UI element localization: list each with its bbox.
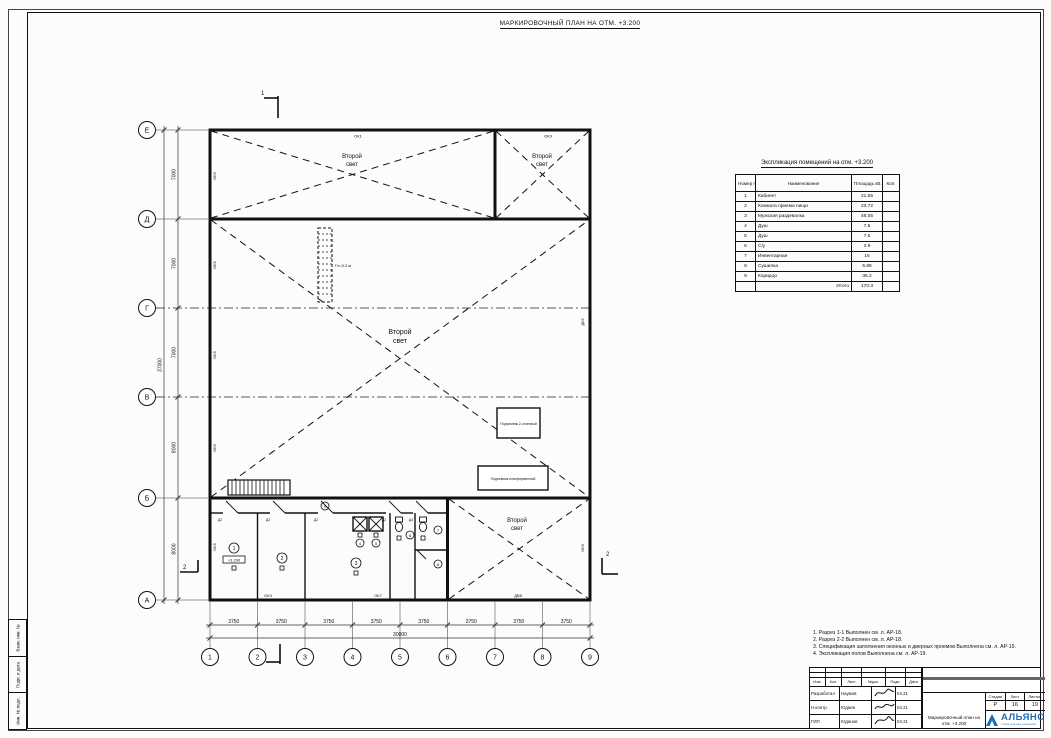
room-num: 2 <box>736 202 756 212</box>
axis-label: Е <box>145 128 150 135</box>
second-light-text: свет <box>536 162 548 168</box>
dim-label: 3750 <box>418 619 429 625</box>
room-area: 7.5 <box>852 232 883 242</box>
axis-label: 7 <box>493 655 497 662</box>
stamp-doc-code-box <box>923 668 1045 693</box>
axis-label: В <box>145 395 150 402</box>
notes-block: 1. Разрез 1-1 Выполнен см. л. АР-18. 2. … <box>813 630 1051 658</box>
table-row: 3Мужская раздевалка48.05 <box>736 212 900 222</box>
room-name: Коридор <box>756 272 852 282</box>
axis-label: 1 <box>208 655 212 662</box>
room-qty <box>883 202 900 212</box>
second-light-text: Второй <box>342 153 362 160</box>
empty-cell <box>883 282 900 292</box>
sig-name: Юданов <box>840 715 872 728</box>
company-logo: АЛЬЯНС строительная компания <box>986 711 1045 728</box>
empty-cell <box>736 282 756 292</box>
window-tag: ОК7 <box>374 593 382 598</box>
company-name: АЛЬЯНС <box>1001 713 1045 722</box>
stage-label: Стадия <box>986 693 1006 700</box>
room-num: 4 <box>736 222 756 232</box>
dim-label: 3750 <box>276 619 287 625</box>
wall-opening-tags: ОК1 ОК3 ОК5 ОК5 ОК5 ОК5 ОК5 ДК3 ОК6 ОК4 … <box>212 134 585 599</box>
second-light-text: свет <box>346 162 358 168</box>
door-tag: Д2 <box>382 518 386 522</box>
note-line: 2. Разрез 2-2 Выполнен см. л. АР-18. <box>813 637 1051 644</box>
window-tag: ОК6 <box>580 543 585 551</box>
alliance-triangle-icon <box>986 714 998 726</box>
axis-label: Б <box>145 496 150 503</box>
title-block-signatures: Изм. Кол. Лист №док. Подп. Дата Разработ… <box>810 668 923 728</box>
axis-label: 9 <box>588 655 592 662</box>
margin-label: Взам. инв. № <box>15 624 20 651</box>
col-header: Наименование <box>756 175 852 192</box>
dim-label: 3750 <box>323 619 334 625</box>
window-tag: ОК5 <box>212 443 217 451</box>
room-area: 7.5 <box>852 222 883 232</box>
room-qty <box>883 222 900 232</box>
table-header-row: Номер пом. Наименование Площадь кВ.м Кол… <box>736 175 900 192</box>
left-dimensions <box>162 126 181 604</box>
stage-value: Р <box>986 701 1006 710</box>
room-area: 16 <box>852 252 883 262</box>
sig-date: 04.21 <box>896 687 922 700</box>
total-area: 170.3 <box>852 282 883 292</box>
drawing-sheet: МАРКИРОВОЧНЫЙ ПЛАН НА ОТМ. +3.200 <box>0 0 1051 738</box>
dim-label: 7000 <box>172 258 178 269</box>
table-row: 2Комната приема пищи23.72 <box>736 202 900 212</box>
room-qty <box>883 212 900 222</box>
axis-label: 2 <box>256 655 260 662</box>
room-area: 23.72 <box>852 202 883 212</box>
room-num: 3 <box>736 212 756 222</box>
room-num: 9 <box>736 272 756 282</box>
stage-header-row: Стадия Лист Листов <box>986 693 1045 701</box>
equipment-lift-1: Подъемник 2-стоечный <box>497 408 540 438</box>
signature <box>872 715 896 728</box>
table-row: 4Душ7.5 <box>736 222 900 232</box>
dim-total-label: 37000 <box>158 358 164 372</box>
window-tag: ОК5 <box>212 542 217 550</box>
axis-label: 6 <box>446 655 450 662</box>
equipment-label-2: Подъемник платформенный <box>491 477 536 481</box>
col-header: Номер пом. <box>736 175 756 192</box>
stamp-header-cell: №док. <box>862 678 886 686</box>
axis-label: Д <box>145 217 150 224</box>
partition-walls <box>210 513 448 600</box>
drawing-title-text: МАРКИРОВОЧНЫЙ ПЛАН НА ОТМ. +3.200 <box>500 20 641 29</box>
stamp-meta: Стадия Лист Листов Р 16 19 А <box>986 693 1045 728</box>
axis-label: А <box>145 598 150 605</box>
room-number: 1 <box>233 546 236 552</box>
room-area: 3.9 <box>852 242 883 252</box>
pit <box>318 228 332 302</box>
axis-label: Г <box>145 306 149 313</box>
room-area: 48.05 <box>852 212 883 222</box>
dim-label: 8000 <box>172 543 178 554</box>
axis-dash-lines <box>156 308 590 397</box>
table-row: 8Сушилка5.88 <box>736 262 900 272</box>
door-tag: ДК3 <box>580 318 585 326</box>
sig-date: 04.21 <box>896 715 922 728</box>
dim-total-label: 30000 <box>393 632 407 638</box>
room-name: Кабинет <box>756 192 852 202</box>
window-tag: ОК1 <box>354 134 362 139</box>
col-header: Площадь кВ.м <box>852 175 883 192</box>
elevation-value: +3.200 <box>228 558 241 563</box>
pit-depth-label: Гл=3.2 м <box>335 263 351 268</box>
explication-title: Экспликация помещений на отм. +3.200 <box>735 160 899 166</box>
left-margin-strip: Взам. инв. № Подп. и дата Инв. № подл. <box>8 619 27 730</box>
axis-bubbles-left <box>139 122 156 609</box>
second-light-text: Второй <box>507 517 527 524</box>
axis-label: 3 <box>303 655 307 662</box>
room-qty <box>883 252 900 262</box>
sheets-total: 19 <box>1025 701 1045 710</box>
explication-title-text: Экспликация помещений на отм. +3.200 <box>761 160 873 168</box>
axis-label: 5 <box>398 655 402 662</box>
staircase <box>228 480 290 495</box>
room-name: Комната приема пищи <box>756 202 852 212</box>
sig-role: Н.контр. <box>810 701 840 714</box>
extension-lines <box>156 130 590 648</box>
note-line: 4. Экспликация полов Выполнена см. л. АР… <box>813 651 1051 658</box>
section-number: 1 <box>261 91 265 97</box>
section-marks <box>180 96 618 664</box>
section-number: 2 <box>606 552 610 558</box>
sig-role: ГИП <box>810 715 840 728</box>
table-row: 1Кабинет21.55 <box>736 192 900 202</box>
room-qty <box>883 272 900 282</box>
room-number: 8 <box>437 562 440 567</box>
dim-label: 3750 <box>371 619 382 625</box>
room-num: 6 <box>736 242 756 252</box>
margin-cell: Инв. № подл. <box>9 693 26 729</box>
dim-label: 3750 <box>466 619 477 625</box>
note-line: 3. Спецификация заполнения оконных и две… <box>813 644 1051 651</box>
stamp-bottom: Маркировочный план на отм. +3.200 Стадия… <box>923 693 1045 728</box>
explication-block: Экспликация помещений на отм. +3.200 Ном… <box>735 160 899 292</box>
room-number: 5 <box>375 541 378 546</box>
dim-label: 3750 <box>228 619 239 625</box>
room-number: 7 <box>437 528 440 533</box>
signature-row: Разработал Наумов 04.21 <box>810 687 922 701</box>
dim-label: 8000 <box>172 442 178 453</box>
door-tag: Д3 <box>266 518 270 522</box>
door-tag: ДВ8 <box>514 593 522 598</box>
signature-row: ГИП Юданов 04.21 <box>810 715 922 728</box>
room-area: 21.55 <box>852 192 883 202</box>
floor-plan: Гл=3.2 м Подъемник 2-стоечный Подъемник … <box>120 80 630 680</box>
margin-label: Инв. № подл. <box>15 697 20 724</box>
stamp-header-row: Изм. Кол. Лист №док. Подп. Дата <box>810 678 922 687</box>
margin-cell: Взам. инв. № <box>9 620 26 657</box>
total-label: Итого <box>756 282 852 292</box>
room-area: 5.88 <box>852 262 883 272</box>
door-tag: Д2 <box>314 518 318 522</box>
window-tag: ОК5 <box>212 350 217 358</box>
table-total-row: Итого170.3 <box>736 282 900 292</box>
dim-label: 7000 <box>172 347 178 358</box>
window-tag: ОК5 <box>212 260 217 268</box>
dim-label: 7000 <box>172 169 178 180</box>
margin-cell: Подп. и дата <box>9 657 26 694</box>
table-row: 5Душ7.5 <box>736 232 900 242</box>
shower-cabins <box>353 517 383 537</box>
stage-value-row: Р 16 19 <box>986 701 1045 711</box>
room-name: Мужская раздевалка <box>756 212 852 222</box>
table-row: 9Коридор36.2 <box>736 272 900 282</box>
dim-label: 3750 <box>561 619 572 625</box>
room-name: С/у <box>756 242 852 252</box>
room-area: 36.2 <box>852 272 883 282</box>
title-block: Изм. Кол. Лист №док. Подп. Дата Разработ… <box>809 667 1041 729</box>
second-light-diagonals <box>211 131 589 599</box>
second-light-text: свет <box>511 526 523 532</box>
title-block-right: Маркировочный план на отм. +3.200 Стадия… <box>923 668 1045 728</box>
room-qty <box>883 242 900 252</box>
sig-name: Наумов <box>840 687 872 700</box>
room-name: Сушилка <box>756 262 852 272</box>
company-name-block: АЛЬЯНС строительная компания <box>1001 713 1045 726</box>
door-tag: Д3 <box>409 518 413 522</box>
room-num: 7 <box>736 252 756 262</box>
room-num: 8 <box>736 262 756 272</box>
table-row: 6С/у3.9 <box>736 242 900 252</box>
sheet-number: 16 <box>1006 701 1026 710</box>
signature <box>872 687 896 700</box>
room-number: 6 <box>409 533 412 538</box>
divider <box>923 677 1045 680</box>
axis-label: 8 <box>541 655 545 662</box>
section-number: 2 <box>183 565 187 571</box>
signature-row: Н.контр. Юдаев 04.21 <box>810 701 922 715</box>
room-number: 4 <box>359 541 362 546</box>
door-labels: Д2 Д3 Д2 Д2 Д3 <box>218 518 413 522</box>
stamp-header-cell: Подп. <box>886 678 906 686</box>
elevation-mark: +3.200 <box>223 556 245 570</box>
sig-date: 04.21 <box>896 701 922 714</box>
room-num: 1 <box>736 192 756 202</box>
room-num: 5 <box>736 232 756 242</box>
window-tag: ОК4 <box>264 593 272 598</box>
room-name: Душ <box>756 232 852 242</box>
door-tag: Д2 <box>218 518 222 522</box>
second-light-text: Второй <box>388 328 411 336</box>
room-qty <box>883 262 900 272</box>
axis-label: 4 <box>351 655 355 662</box>
signature <box>872 701 896 714</box>
stamp-header-cell: Лист <box>842 678 862 686</box>
equipment-label-1: Подъемник 2-стоечный <box>500 422 537 426</box>
room-qty <box>883 232 900 242</box>
walls <box>210 130 590 600</box>
room-number: 2 <box>281 556 284 562</box>
sig-role: Разработал <box>810 687 840 700</box>
second-light-text: свет <box>393 338 408 345</box>
margin-label: Подп. и дата <box>15 662 20 688</box>
stamp-header-cell: Дата <box>906 678 922 686</box>
room-qty <box>883 192 900 202</box>
sheet-label: Лист <box>1006 693 1026 700</box>
col-header: Кол. <box>883 175 900 192</box>
equipment-lift-2: Подъемник платформенный <box>478 466 548 490</box>
stamp-doc-title: Маркировочный план на отм. +3.200 <box>923 693 986 728</box>
sig-name: Юдаев <box>840 701 872 714</box>
stamp-header-cell: Кол. <box>826 678 842 686</box>
note-line: 1. Разрез 1-1 Выполнен см. л. АР-18. <box>813 630 1051 637</box>
window-tag: ОК5 <box>212 171 217 179</box>
drawing-title: МАРКИРОВОЧНЫЙ ПЛАН НА ОТМ. +3.200 <box>430 20 710 27</box>
room-name: Душ <box>756 222 852 232</box>
room-name: Инвентарная <box>756 252 852 262</box>
dim-label: 3750 <box>513 619 524 625</box>
room-number: 3 <box>355 561 358 567</box>
stamp-header-cell: Изм. <box>810 678 826 686</box>
column-markers <box>209 129 592 602</box>
window-tag: ОК3 <box>544 134 552 139</box>
table-row: 7Инвентарная16 <box>736 252 900 262</box>
explication-table: Номер пом. Наименование Площадь кВ.м Кол… <box>735 174 900 292</box>
sheets-label: Листов <box>1025 693 1045 700</box>
second-light-text: Второй <box>532 153 552 160</box>
